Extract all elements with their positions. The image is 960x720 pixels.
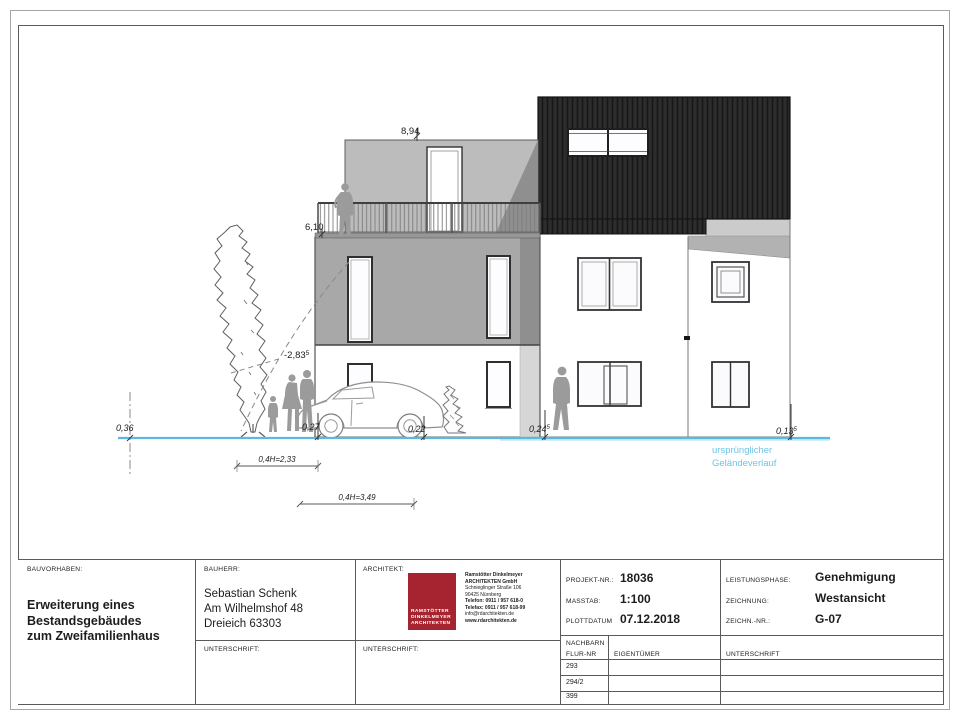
architekt-contact: Ramstötter Dinkelmeyer ARCHITEKTEN GmbH … bbox=[465, 572, 557, 624]
zeichnung-label: ZEICHNUNG: bbox=[726, 598, 769, 605]
nachbarn-label-line2: FLUR-NR bbox=[566, 651, 596, 658]
zeichn-nr-value: G-07 bbox=[815, 612, 842, 626]
main-building bbox=[538, 97, 790, 437]
ground-line bbox=[118, 438, 830, 440]
window-upper-middle bbox=[578, 258, 641, 310]
window-lower-right bbox=[712, 362, 749, 407]
setback-leader bbox=[231, 358, 282, 373]
tree bbox=[214, 225, 267, 437]
window-small-right bbox=[485, 362, 512, 409]
architekt-logo: RAMSTÖTTER DINKELMEYER ARCHITEKTEN bbox=[408, 573, 456, 630]
label-ground-boundary: 0,36 bbox=[116, 423, 134, 433]
nachbarn-row-1: 293 bbox=[566, 663, 578, 670]
bauvorhaben-text: Erweiterung eines Bestandsgebäudes zum Z… bbox=[27, 598, 160, 645]
architekt-label: ARCHITEKT: bbox=[363, 566, 404, 573]
bauvorhaben-label: BAUVORHABEN: bbox=[27, 566, 82, 573]
masstab-label: MASSTAB: bbox=[566, 598, 600, 605]
plottdatum-label: PLOTTDATUM bbox=[566, 618, 612, 625]
bauherr-unterschrift-label: UNTERSCHRIFT: bbox=[204, 646, 260, 653]
label-dim-2: 0,4H=3,49 bbox=[338, 493, 376, 502]
ground-note-line1: ursprünglicher bbox=[712, 445, 772, 456]
projekt-nr-value: 18036 bbox=[620, 571, 653, 585]
nachbarn-row-3: 399 bbox=[566, 693, 578, 700]
window-lower-middle bbox=[578, 362, 641, 406]
plottdatum-value: 07.12.2018 bbox=[620, 612, 680, 626]
leistungsphase-label: LEISTUNGSPHASE: bbox=[726, 577, 791, 584]
leistungsphase-value: Genehmigung bbox=[815, 570, 896, 584]
projekt-nr-label: PROJEKT-NR.: bbox=[566, 577, 614, 584]
elevation-drawing: 8,94 6,10 -2,835 0,36 0,27 0,22 0,245 0,… bbox=[0, 0, 960, 560]
label-height-balcony: 6,10 bbox=[305, 222, 324, 233]
label-height-top: 8,94 bbox=[401, 126, 420, 137]
ground-note-line2: Geländeverlauf bbox=[712, 458, 777, 469]
zeichn-nr-label: ZEICHN.-NR.: bbox=[726, 618, 770, 625]
bauherr-text: Sebastian Schenk Am Wilhelmshof 48 Dreie… bbox=[204, 587, 303, 632]
zeichnung-value: Westansicht bbox=[815, 591, 885, 605]
architekt-unterschrift-label: UNTERSCHRIFT: bbox=[363, 646, 419, 653]
window-upper-right bbox=[712, 262, 749, 302]
label-ground-4: 0,135 bbox=[776, 426, 798, 436]
dark-roof bbox=[538, 97, 790, 234]
window-tall-right bbox=[487, 256, 510, 338]
window-tall-left bbox=[348, 257, 372, 342]
roof-window bbox=[568, 129, 648, 156]
nachbarn-label-line1: NACHBARN bbox=[566, 640, 605, 647]
masstab-value: 1:100 bbox=[620, 592, 651, 606]
drawing-sheet: 8,94 6,10 -2,835 0,36 0,27 0,22 0,245 0,… bbox=[0, 0, 960, 720]
bauherr-label: BAUHERR: bbox=[204, 566, 240, 573]
label-dim-1: 0,4H=2,33 bbox=[258, 455, 296, 464]
label-ground-1: 0,27 bbox=[302, 422, 321, 432]
label-ground-2: 0,22 bbox=[408, 424, 426, 434]
nachbarn-row-2: 294/2 bbox=[566, 679, 584, 686]
unterschrift-column-label: UNTERSCHRIFT bbox=[726, 651, 780, 658]
title-block: BAUVORHABEN: Erweiterung eines Bestandsg… bbox=[18, 559, 943, 704]
eigentuemer-label: EIGENTÜMER bbox=[614, 651, 660, 658]
label-offset-wall: -2,835 bbox=[284, 350, 310, 361]
